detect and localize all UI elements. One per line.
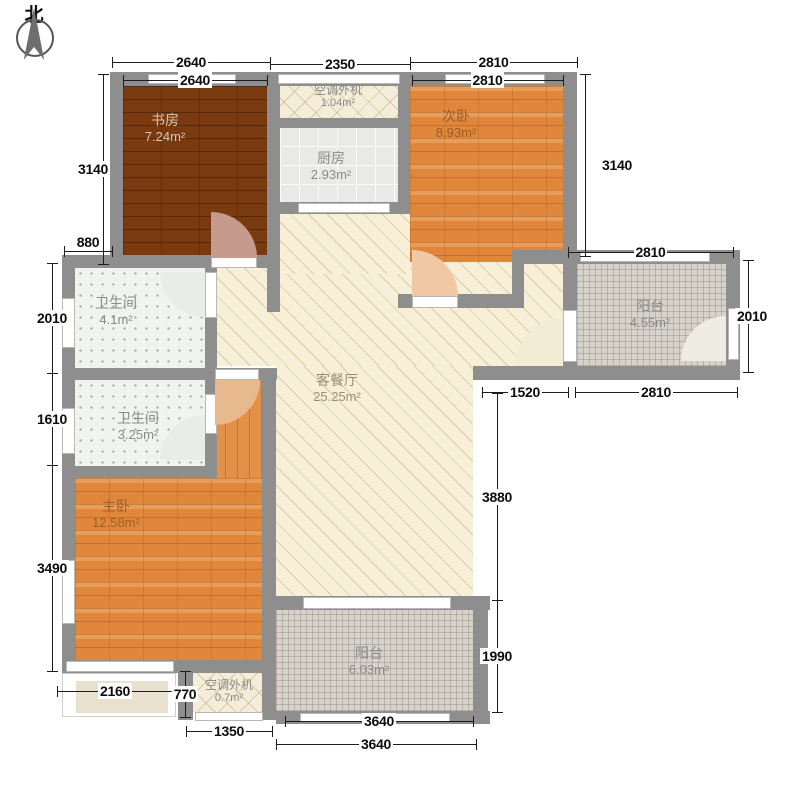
dimension-label: 2640	[174, 54, 208, 70]
dimension-tick	[492, 393, 503, 394]
dimension-tick	[285, 716, 286, 727]
dimension-tick	[568, 247, 569, 258]
dimension-tick	[123, 75, 124, 86]
dimension-label: 3640	[359, 736, 393, 752]
living-hall-floor-main	[276, 366, 473, 596]
dimension-tick	[743, 372, 754, 373]
dimension-tick	[272, 726, 273, 737]
room-label-ac-bottom: 空调外机 0.7m²	[205, 679, 253, 704]
room-label-bath1: 卫生间 4.1m²	[95, 295, 137, 328]
dimension-tick	[98, 264, 109, 265]
door-opening-bath1	[205, 272, 217, 318]
dimension-tick	[47, 373, 58, 374]
dimension-line	[585, 74, 586, 256]
dimension-tick	[47, 263, 58, 264]
dimension-label: 2810	[639, 384, 673, 400]
room-label-bath2: 卫生间 3.25m²	[117, 410, 159, 443]
dimension-label: 1990	[480, 648, 514, 664]
dimension-label: 880	[75, 234, 101, 250]
dimension-tick	[580, 256, 591, 257]
door-opening-master	[215, 369, 259, 380]
room-label-living: 客餐厅 25.25m²	[313, 372, 361, 405]
dimension-tick	[575, 387, 576, 398]
dimension-label: 2640	[178, 72, 212, 88]
dimension-label: 2810	[477, 54, 511, 70]
dimension-tick	[568, 387, 569, 398]
dimension-tick	[64, 246, 65, 257]
wall-ac-divider	[272, 118, 403, 128]
dimension-label: 1610	[35, 411, 69, 427]
dimension-tick	[47, 671, 58, 672]
wall-study-left	[110, 72, 123, 268]
dimension-tick	[57, 686, 58, 697]
living-hall-floor-upper	[213, 262, 563, 366]
room-label-master: 主卧 12.58m²	[92, 498, 140, 531]
wall-balcony-right-bottom	[473, 366, 740, 380]
dimension-label: 3880	[480, 489, 514, 505]
dimension-tick	[492, 712, 503, 713]
dimension-tick	[482, 387, 483, 398]
sliding-door-living-balcony	[303, 597, 451, 609]
dimension-tick	[476, 739, 477, 750]
sliding-door-kitchen	[298, 203, 390, 213]
dimension-label: 2810	[634, 244, 668, 260]
dimension-label: 3490	[35, 560, 69, 576]
window-master-bottom	[66, 661, 174, 672]
dimension-label: 1520	[508, 384, 542, 400]
dimension-label: 2010	[735, 308, 769, 324]
wall-bedroom2-stub	[512, 262, 524, 308]
room-label-balcony-bottom: 阳台 6.03m²	[349, 645, 389, 678]
dimension-label: 1350	[212, 723, 246, 739]
wall-kitchen-left	[267, 72, 280, 312]
dimension-tick	[733, 247, 734, 258]
door-opening-bedroom2	[412, 296, 458, 308]
north-compass: 北	[10, 0, 58, 62]
dimension-label: 3140	[600, 157, 634, 173]
dimension-tick	[98, 74, 109, 75]
room-label-ac-top: 空调外机 1.04m²	[314, 84, 362, 109]
dimension-tick	[270, 59, 271, 70]
floor-plan: 北	[0, 0, 800, 800]
dimension-tick	[267, 75, 268, 86]
dimension-tick	[410, 57, 411, 68]
dimension-tick	[743, 260, 754, 261]
dimension-label: 2160	[98, 683, 132, 699]
room-label-bedroom2: 次卧 8.93m²	[436, 108, 476, 141]
dimension-tick	[276, 739, 277, 750]
dimension-label: 770	[172, 686, 198, 702]
living-hall-floor-top	[276, 204, 410, 274]
wall-bath2-bottom	[62, 466, 217, 478]
dimension-label: 2810	[471, 72, 505, 88]
dimension-label: 3140	[76, 161, 110, 177]
room-label-balcony-right: 阳台 4.55m²	[630, 298, 670, 331]
dimension-tick	[473, 716, 474, 727]
room-label-study: 书房 7.24m²	[145, 112, 185, 145]
dimension-tick	[412, 75, 413, 86]
dimension-tick	[112, 57, 113, 68]
dimension-tick	[492, 600, 503, 601]
bedroom2-floor	[410, 86, 563, 262]
dimension-tick	[112, 246, 113, 257]
wall-kitchen-right	[398, 72, 410, 214]
dimension-tick	[180, 671, 191, 672]
dimension-tick	[186, 726, 187, 737]
dimension-line	[64, 251, 112, 252]
room-label-kitchen: 厨房 2.93m²	[311, 150, 351, 183]
dimension-tick	[580, 74, 591, 75]
dimension-tick	[47, 465, 58, 466]
dimension-label: 3640	[362, 713, 396, 729]
dimension-tick	[563, 75, 564, 86]
dimension-label: 2350	[323, 56, 357, 72]
dimension-tick	[737, 387, 738, 398]
sill-ac-bottom	[195, 712, 263, 721]
dimension-label: 2010	[35, 310, 69, 326]
dimension-tick	[180, 717, 191, 718]
dimension-tick	[577, 57, 578, 68]
door-opening-balcony-right	[563, 310, 577, 362]
door-opening-study	[211, 257, 257, 268]
wall-right-upper	[563, 72, 577, 264]
